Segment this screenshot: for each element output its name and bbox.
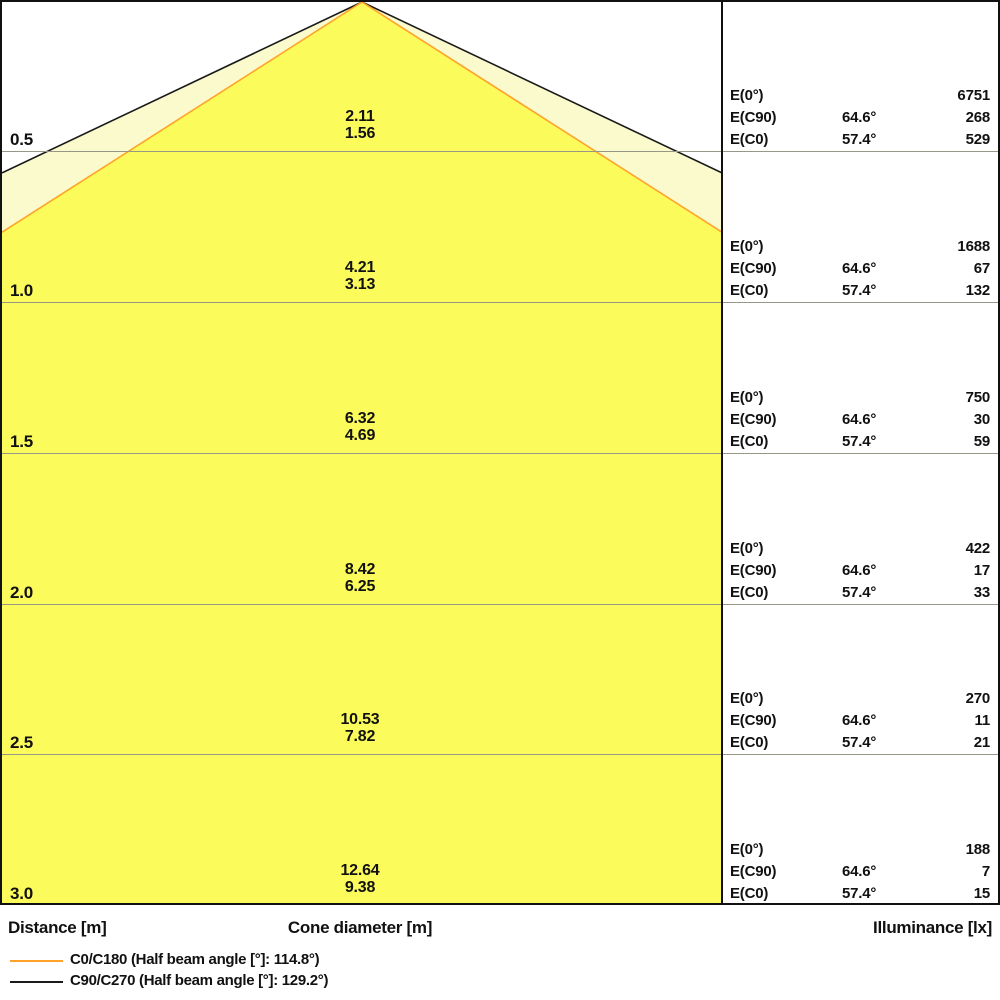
e0-row: E(0°) 750 [730,389,990,411]
e0-value: 750 [966,389,990,406]
ec0-angle: 57.4° [842,433,876,450]
ec90-label: E(C90) [730,260,776,277]
illuminance-block: E(0°) 6751 E(C90) 64.6° 268 E(C0) 57.4° … [730,87,990,153]
row-2-0m: 2.0 8.42 6.25 E(0°) 422 E(C90) 64.6° 17 … [2,544,998,606]
ec0-label: E(C0) [730,282,768,299]
distance-label: 2.0 [10,584,33,602]
ec90-row: E(C90) 64.6° 7 [730,863,990,885]
legend-label-c0: C0/C180 (Half beam angle [°]: 114.8°) [70,951,319,968]
ec90-angle: 64.6° [842,562,876,579]
illuminance-block: E(0°) 188 E(C90) 64.6° 7 E(C0) 57.4° 15 [730,841,990,907]
cone-diameter-c90: 6.32 [260,410,460,427]
ec0-label: E(C0) [730,131,768,148]
ec0-value: 132 [966,282,990,299]
ec90-label: E(C90) [730,411,776,428]
axis-label-distance: Distance [m] [8,918,106,938]
cone-diameter-values: 8.42 6.25 [260,561,460,595]
ec90-value: 268 [966,109,990,126]
cone-diameter-c90: 12.64 [260,862,460,879]
distance-label: 3.0 [10,885,33,903]
ec0-angle: 57.4° [842,282,876,299]
legend-entry-c0: C0/C180 (Half beam angle [°]: 114.8°) [0,951,600,971]
legend-line-c90-icon [10,981,63,983]
ec90-value: 11 [975,712,990,729]
ec90-value: 67 [974,260,990,277]
ec90-row: E(C90) 64.6° 30 [730,411,990,433]
ec0-angle: 57.4° [842,584,876,601]
ec90-label: E(C90) [730,109,776,126]
cone-diameter-c90: 10.53 [260,711,460,728]
illuminance-block: E(0°) 270 E(C90) 64.6° 11 E(C0) 57.4° 21 [730,690,990,756]
ec90-angle: 64.6° [842,109,876,126]
ec0-row: E(C0) 57.4° 21 [730,734,990,756]
cone-diameter-c0: 7.82 [260,728,460,745]
cone-diameter-c90: 8.42 [260,561,460,578]
e0-row: E(0°) 270 [730,690,990,712]
ec0-label: E(C0) [730,584,768,601]
row-1-0m: 1.0 4.21 3.13 E(0°) 1688 E(C90) 64.6° 67… [2,242,998,304]
e0-value: 1688 [957,238,990,255]
illuminance-block: E(0°) 422 E(C90) 64.6° 17 E(C0) 57.4° 33 [730,540,990,606]
legend-label-c90: C90/C270 (Half beam angle [°]: 129.2°) [70,972,328,989]
ec90-angle: 64.6° [842,863,876,880]
e0-value: 270 [966,690,990,707]
e0-row: E(0°) 1688 [730,238,990,260]
e0-value: 6751 [957,87,990,104]
distance-label: 2.5 [10,734,33,752]
e0-row: E(0°) 6751 [730,87,990,109]
ec90-angle: 64.6° [842,260,876,277]
ec0-row: E(C0) 57.4° 59 [730,433,990,455]
e0-row: E(0°) 188 [730,841,990,863]
cone-diameter-values: 4.21 3.13 [260,259,460,293]
chart-area: 0.5 2.11 1.56 E(0°) 6751 E(C90) 64.6° 26… [0,0,1000,905]
e0-label: E(0°) [730,238,763,255]
e0-value: 422 [966,540,990,557]
ec0-row: E(C0) 57.4° 132 [730,282,990,304]
cone-diameter-c90: 4.21 [260,259,460,276]
row-1-5m: 1.5 6.32 4.69 E(0°) 750 E(C90) 64.6° 30 … [2,393,998,455]
cone-diameter-values: 2.11 1.56 [260,108,460,142]
e0-label: E(0°) [730,389,763,406]
ec0-row: E(C0) 57.4° 33 [730,584,990,606]
distance-label: 1.5 [10,433,33,451]
ec90-row: E(C90) 64.6° 268 [730,109,990,131]
ec90-row: E(C90) 64.6° 17 [730,562,990,584]
ec0-value: 59 [974,433,990,450]
row-2-5m: 2.5 10.53 7.82 E(0°) 270 E(C90) 64.6° 11… [2,694,998,756]
e0-label: E(0°) [730,690,763,707]
e0-row: E(0°) 422 [730,540,990,562]
axis-label-cone-diameter: Cone diameter [m] [260,918,460,938]
ec0-value: 529 [966,131,990,148]
ec90-value: 30 [974,411,990,428]
ec90-angle: 64.6° [842,712,876,729]
ec0-label: E(C0) [730,433,768,450]
row-3-0m: 3.0 12.64 9.38 E(0°) 188 E(C90) 64.6° 7 … [2,845,998,907]
legend-entry-c90: C90/C270 (Half beam angle [°]: 129.2°) [0,972,600,992]
ec0-angle: 57.4° [842,734,876,751]
ec0-row: E(C0) 57.4° 15 [730,885,990,907]
ec0-value: 21 [974,734,990,751]
cone-diameter-c0: 3.13 [260,276,460,293]
ec0-row: E(C0) 57.4° 529 [730,131,990,153]
e0-label: E(0°) [730,841,763,858]
e0-value: 188 [966,841,990,858]
cone-diameter-c0: 6.25 [260,578,460,595]
ec0-angle: 57.4° [842,885,876,902]
cone-diameter-c0: 4.69 [260,427,460,444]
ec90-row: E(C90) 64.6° 67 [730,260,990,282]
ec0-value: 33 [974,584,990,601]
e0-label: E(0°) [730,540,763,557]
ec90-label: E(C90) [730,863,776,880]
distance-label: 0.5 [10,131,33,149]
ec90-angle: 64.6° [842,411,876,428]
cone-diameter-c0: 9.38 [260,879,460,896]
ec90-label: E(C90) [730,712,776,729]
cone-diameter-values: 12.64 9.38 [260,862,460,896]
cone-diameter-values: 6.32 4.69 [260,410,460,444]
cone-diameter-c90: 2.11 [260,108,460,125]
cone-diameter-values: 10.53 7.82 [260,711,460,745]
ec0-angle: 57.4° [842,131,876,148]
ec90-value: 7 [982,863,990,880]
ec90-row: E(C90) 64.6° 11 [730,712,990,734]
legend-line-c0-icon [10,960,63,962]
light-cone-diagram: 0.5 2.11 1.56 E(0°) 6751 E(C90) 64.6° 26… [0,0,1000,1000]
illuminance-block: E(0°) 1688 E(C90) 64.6° 67 E(C0) 57.4° 1… [730,238,990,304]
ec90-value: 17 [974,562,990,579]
cone-diameter-c0: 1.56 [260,125,460,142]
ec0-label: E(C0) [730,734,768,751]
axis-label-illuminance: Illuminance [lx] [873,918,992,938]
ec90-label: E(C90) [730,562,776,579]
ec0-label: E(C0) [730,885,768,902]
ec0-value: 15 [974,885,990,902]
row-0-5m: 0.5 2.11 1.56 E(0°) 6751 E(C90) 64.6° 26… [2,91,998,153]
distance-label: 1.0 [10,282,33,300]
e0-label: E(0°) [730,87,763,104]
illuminance-block: E(0°) 750 E(C90) 64.6° 30 E(C0) 57.4° 59 [730,389,990,455]
